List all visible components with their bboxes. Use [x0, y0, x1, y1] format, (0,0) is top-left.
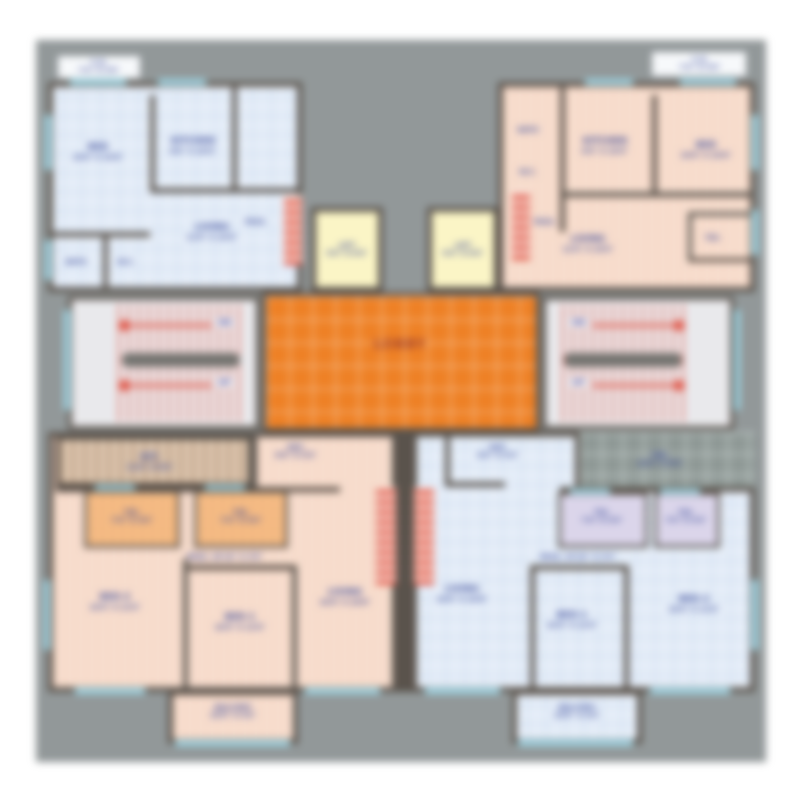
wall	[188, 565, 292, 570]
wall	[445, 482, 505, 487]
window-sill	[45, 115, 51, 170]
wall	[252, 436, 257, 491]
room-label-living: LIVING12'6" X 10'0"	[186, 222, 237, 241]
room-label-bed1: BED-110'0" X 12'0"	[214, 612, 265, 631]
balcony-label: BALCONY10'6" X 4'0"	[554, 704, 600, 721]
stair-up-arrow	[592, 384, 676, 387]
terrace-label: TER.12'0" X 8'0"	[637, 452, 683, 469]
window-sill	[175, 740, 290, 746]
window-sill	[75, 688, 145, 694]
window-sill	[680, 79, 736, 85]
stair-landing	[122, 353, 240, 367]
window-sill	[650, 688, 730, 694]
room-label-living: LIVING12'6" X 10'0"	[562, 234, 613, 253]
room-label-wc: W.C.	[519, 168, 537, 176]
room-label-kitchen: KITCHEN8'0" X 10'0"	[170, 136, 216, 155]
wall	[560, 192, 755, 197]
passage-dimension-text: PASS. 29'10" X 3'6"	[540, 553, 616, 561]
window-sill	[44, 580, 50, 650]
room-label-bath: BATH	[518, 126, 539, 134]
window-sill	[64, 310, 70, 410]
wall	[688, 212, 755, 216]
staircase-left: DN UP	[68, 296, 260, 430]
window-sill	[45, 240, 51, 280]
room-label-bed2: BED-210'0" X 12'0"	[668, 594, 719, 613]
room-label-toilet: TOI.7'0" X 4'0"	[665, 509, 706, 526]
room-label-toilet: TOI.7'0" X 4'0"	[111, 509, 152, 526]
room-label-kitchen: KITCHEN8'0" X 10'0"	[582, 136, 628, 155]
window-sill	[752, 210, 758, 255]
room-label-bath: BATH	[66, 258, 87, 266]
wall	[150, 188, 302, 193]
room-label-bed2: BED-210'0" X 12'0"	[89, 592, 140, 611]
balcony-label: C.O.7'4" X 3'0"	[679, 56, 720, 73]
window-sill	[660, 489, 700, 494]
room-label-bed: BED10'0" X 10'6"	[72, 142, 123, 161]
wall	[560, 82, 565, 232]
window-sill	[570, 489, 610, 494]
room-label-toilet: TOI.7'0" X 4'0"	[220, 509, 261, 526]
staircase-right: DN UP	[542, 296, 734, 430]
wall	[652, 95, 657, 195]
window-sill	[205, 485, 245, 490]
wall	[530, 565, 535, 692]
service-duct	[376, 487, 396, 585]
service-duct	[512, 190, 530, 260]
floor-plan-image: DN UP DN UP	[0, 0, 800, 800]
room-label-living: LIVING10'0" X 16'8"	[319, 587, 370, 606]
wall	[445, 432, 450, 487]
wall	[183, 559, 188, 692]
wall	[530, 565, 629, 570]
lift-label: LIFT5'0" X 6'0"	[326, 242, 367, 259]
stair-up-arrow	[128, 384, 212, 387]
wall	[103, 237, 108, 292]
window-sill	[158, 79, 206, 85]
balcony-label: C.O.7'4" X 3'0"	[78, 59, 119, 76]
building-floor-plan: DN UP DN UP	[36, 40, 766, 762]
stair-up-label: UP	[216, 378, 232, 387]
window-sill	[305, 688, 380, 694]
stair-dn-label: DN	[216, 318, 233, 327]
room-label-bed1: BED-110'0" X 12'0"	[546, 610, 597, 629]
room-label-wc: W.C.	[117, 258, 135, 266]
room-label-passage: PASS.	[534, 218, 556, 226]
service-duct	[414, 487, 434, 585]
stair-down-arrow	[128, 324, 212, 327]
room-label-toilet: TOI.7'0" X 4'0"	[581, 509, 622, 526]
room-label-entry: ENT.8'0" X 5'0"	[275, 444, 316, 461]
service-duct	[284, 195, 302, 265]
window-sill	[425, 688, 500, 694]
lobby-label: LOBBY	[374, 338, 426, 353]
stair-dn-label: DN	[570, 318, 587, 327]
lobby	[262, 292, 540, 432]
stair-landing	[564, 353, 682, 367]
lift-label: LIFT5'0" X 6'0"	[442, 242, 483, 259]
room-label-bed: BED10'0" X 10'6"	[680, 140, 731, 159]
wall	[232, 82, 237, 192]
room-label-kitchen: KIT.12'0" X 8'0"	[127, 452, 173, 471]
window-sill	[752, 580, 758, 650]
wall	[624, 565, 629, 692]
window-sill	[518, 740, 633, 746]
window-sill	[734, 310, 740, 410]
window-sill	[752, 115, 758, 170]
room-label-passage: PASS.	[245, 218, 267, 226]
stair-up-label: UP	[570, 378, 586, 387]
window-sill	[585, 79, 633, 85]
balcony-label: BALCONY10'6" X 4'0"	[210, 704, 256, 721]
passage-dimension-text: PASS. 29'10" X 3'6"	[187, 553, 263, 561]
wall	[150, 95, 155, 192]
window-sill	[70, 79, 126, 85]
wall	[688, 212, 692, 262]
wall	[48, 232, 150, 237]
wall	[688, 258, 755, 262]
room-label-toilet: TOI.	[705, 234, 721, 242]
room-label-entry: ENT.8'0" X 5'0"	[477, 444, 518, 461]
wall	[292, 565, 297, 692]
room-label-living: LIVING10'0" X 16'8"	[436, 584, 487, 603]
window-sill	[95, 485, 135, 490]
stair-down-arrow	[592, 324, 676, 327]
